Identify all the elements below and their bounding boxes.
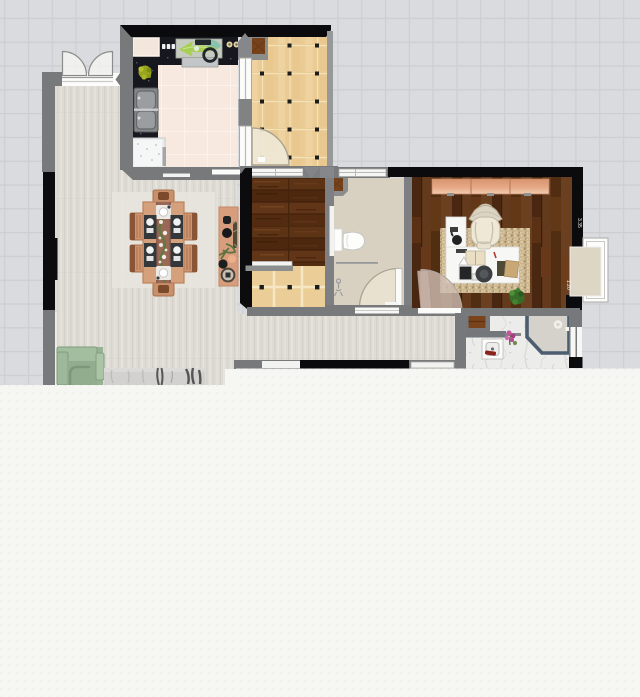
svg-text:1.20: 1.20 — [565, 280, 571, 290]
svg-text:3.35: 3.35 — [576, 218, 582, 228]
